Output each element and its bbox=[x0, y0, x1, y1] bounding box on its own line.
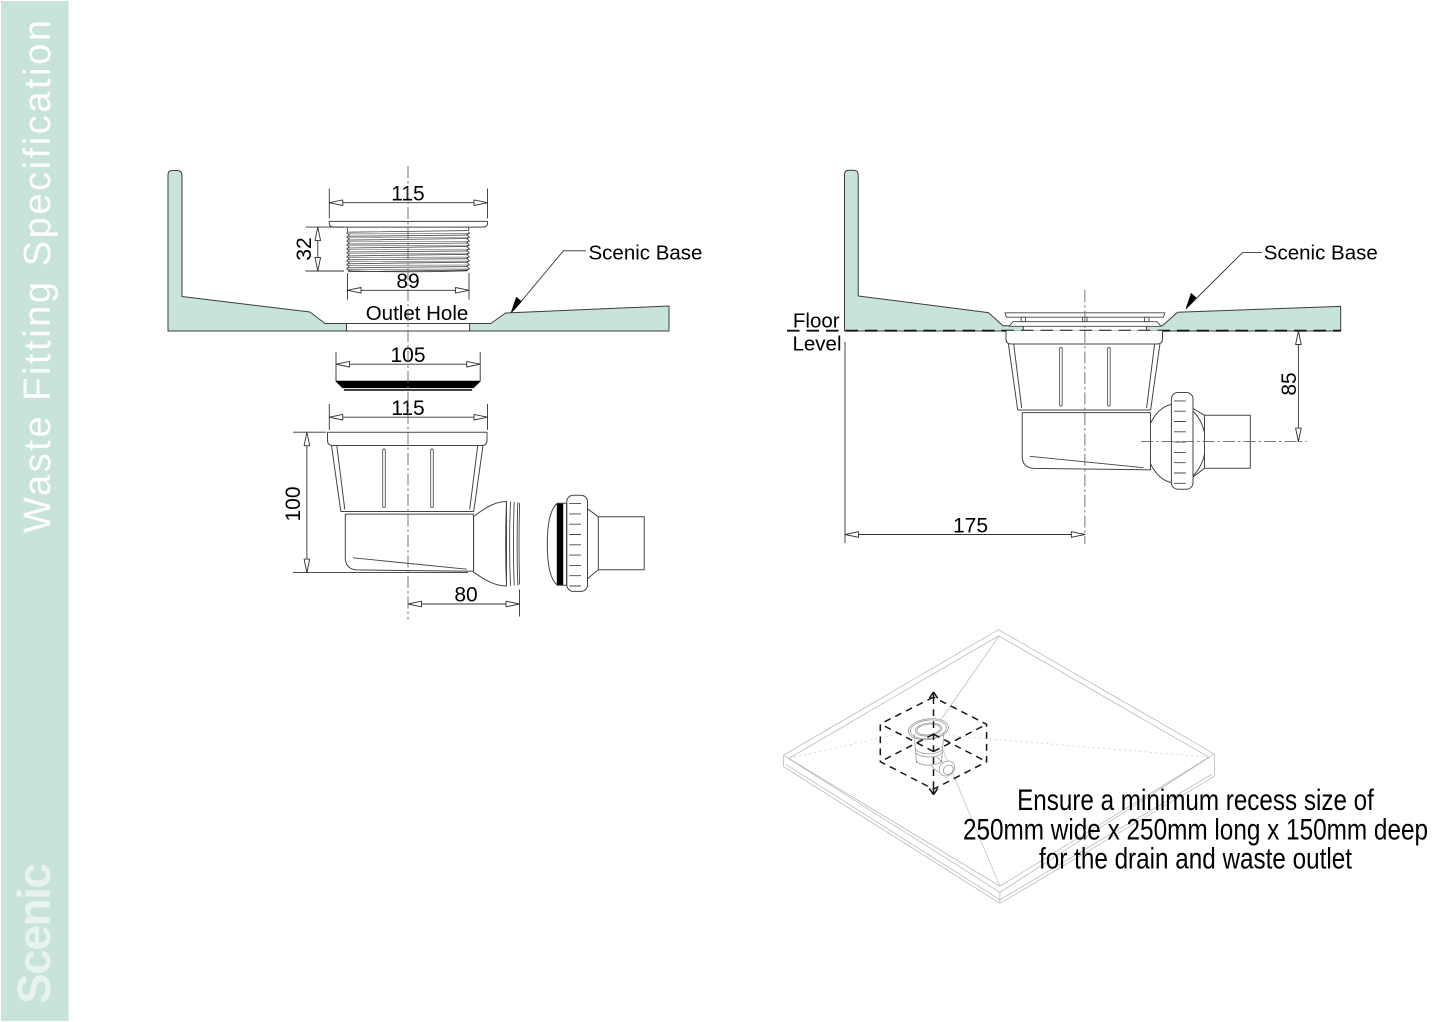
svg-text:Scenic Base: Scenic Base bbox=[589, 241, 703, 264]
svg-text:for the drain and waste outlet: for the drain and waste outlet bbox=[1039, 843, 1352, 876]
svg-text:Floor: Floor bbox=[793, 309, 840, 332]
svg-text:Level: Level bbox=[793, 333, 842, 356]
svg-text:Waste Fitting Specification: Waste Fitting Specification bbox=[17, 19, 59, 533]
svg-text:85: 85 bbox=[1278, 372, 1301, 395]
svg-text:100: 100 bbox=[282, 486, 305, 521]
svg-text:Scenic Base: Scenic Base bbox=[1264, 241, 1378, 264]
svg-text:175: 175 bbox=[953, 515, 988, 538]
svg-text:Scenic: Scenic bbox=[8, 863, 60, 1004]
svg-text:250mm wide x 250mm long x 150m: 250mm wide x 250mm long x 150mm deep bbox=[963, 813, 1428, 846]
svg-text:Ensure a minimum recess size o: Ensure a minimum recess size of bbox=[1017, 784, 1374, 817]
svg-text:Outlet Hole: Outlet Hole bbox=[366, 302, 469, 325]
svg-text:32: 32 bbox=[293, 237, 316, 260]
svg-text:80: 80 bbox=[454, 584, 477, 607]
